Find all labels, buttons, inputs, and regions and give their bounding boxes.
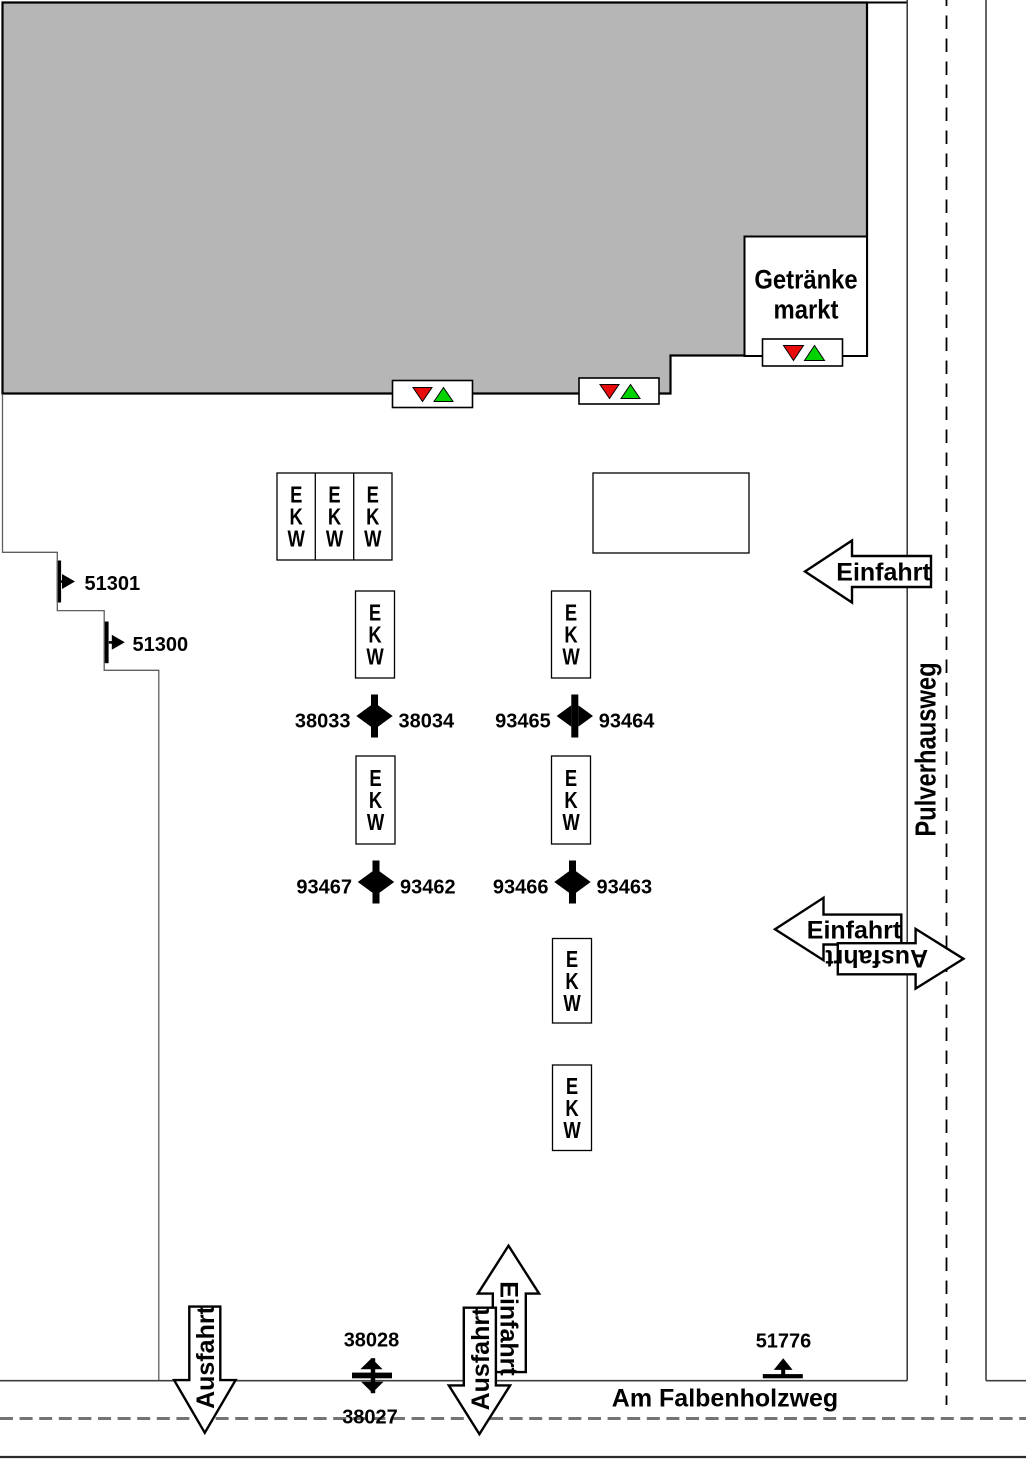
svg-text:93462: 93462	[400, 877, 456, 899]
svg-text:51301: 51301	[85, 573, 141, 595]
svg-text:38033: 38033	[295, 711, 351, 733]
svg-text:Einfahrt: Einfahrt	[495, 1281, 523, 1376]
svg-text:Ausfahrt: Ausfahrt	[825, 944, 928, 972]
svg-text:Einfahrt: Einfahrt	[807, 916, 902, 944]
svg-text:38028: 38028	[344, 1329, 400, 1351]
svg-text:Einfahrt: Einfahrt	[836, 558, 931, 586]
svg-text:markt: markt	[774, 295, 839, 324]
svg-text:93463: 93463	[597, 877, 653, 899]
svg-text:93465: 93465	[495, 711, 551, 733]
svg-text:93467: 93467	[296, 877, 352, 899]
svg-text:93464: 93464	[599, 711, 655, 733]
svg-text:Ausfahrt: Ausfahrt	[192, 1305, 220, 1408]
svg-text:Ausfahrt: Ausfahrt	[467, 1307, 495, 1410]
svg-text:38034: 38034	[399, 711, 455, 733]
svg-text:51300: 51300	[133, 634, 189, 656]
svg-text:93466: 93466	[493, 877, 549, 899]
svg-text:Getränke: Getränke	[754, 265, 857, 294]
svg-text:38027: 38027	[342, 1407, 398, 1429]
svg-text:51776: 51776	[756, 1330, 812, 1352]
svg-text:Pulverhausweg: Pulverhausweg	[909, 662, 942, 836]
svg-text:Am Falbenholzweg: Am Falbenholzweg	[612, 1385, 838, 1413]
